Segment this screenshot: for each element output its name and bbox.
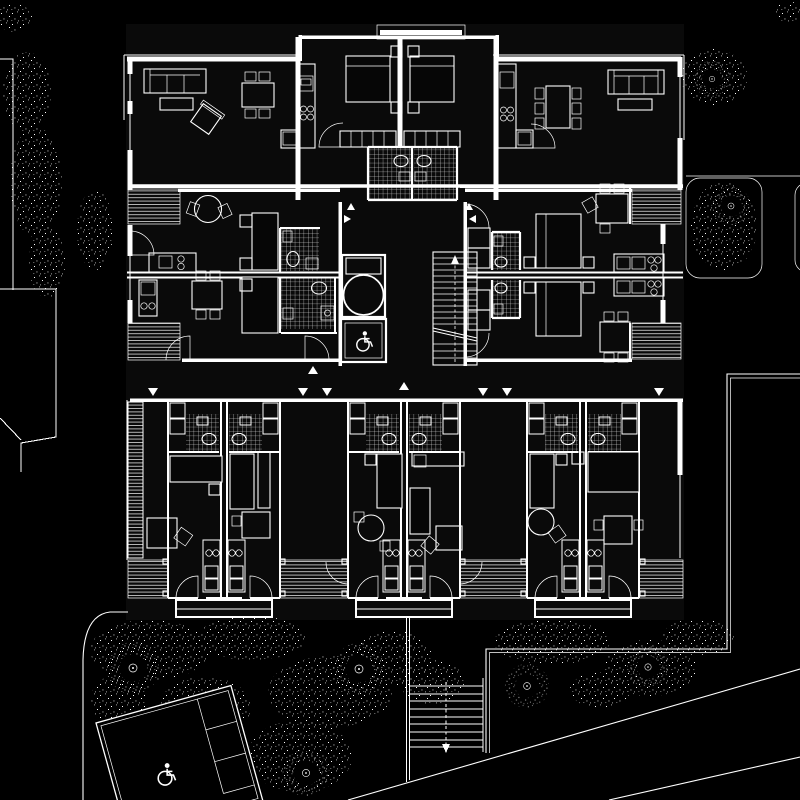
- balcony-deck: [632, 189, 681, 224]
- bed: [410, 56, 454, 102]
- bed: [346, 56, 390, 102]
- bathroom: [281, 278, 335, 329]
- bathroom: [281, 229, 319, 271]
- tree-ring-icon: [627, 646, 669, 688]
- bathroom: [492, 232, 520, 270]
- bed: [377, 454, 402, 508]
- bed: [536, 214, 581, 268]
- bed: [170, 456, 222, 482]
- balcony-deck: [128, 560, 168, 598]
- tree-ring-icon: [107, 642, 159, 694]
- bed: [536, 282, 581, 336]
- bed: [588, 452, 639, 492]
- balcony-deck: [128, 189, 180, 224]
- tree-ring-icon: [694, 61, 730, 97]
- tree-ring-icon: [333, 643, 385, 695]
- floor-plan-canvas: [0, 0, 800, 800]
- floor-plan-svg: [0, 0, 800, 800]
- tree-ring-icon: [712, 187, 751, 226]
- balcony-deck: [639, 560, 683, 598]
- bed: [410, 488, 430, 534]
- bed: [242, 277, 278, 333]
- center-bathrooms: [368, 147, 457, 200]
- balcony-deck: [632, 323, 681, 359]
- tree-ring-icon: [505, 664, 549, 708]
- balcony-deck: [280, 560, 348, 598]
- bathroom: [492, 280, 520, 318]
- bed: [530, 454, 554, 508]
- bed: [230, 454, 254, 509]
- balcony-deck: [460, 560, 527, 598]
- bed: [252, 213, 278, 270]
- tree-ring-icon: [283, 750, 330, 797]
- west-deck-strip: [128, 402, 143, 558]
- balcony-deck: [128, 323, 180, 360]
